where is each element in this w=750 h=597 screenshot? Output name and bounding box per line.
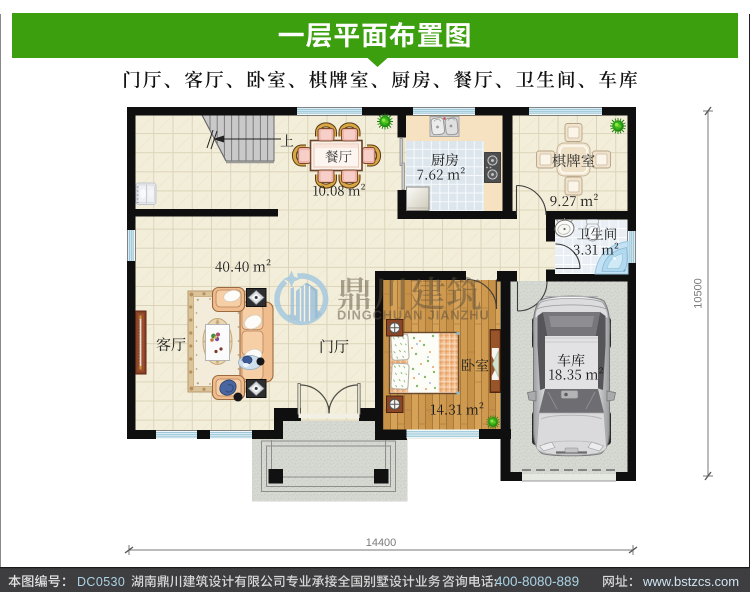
svg-text:400-8080-889: 400-8080-889 xyxy=(495,574,579,589)
svg-text:DINGCHUAN JIANZHU: DINGCHUAN JIANZHU xyxy=(337,308,490,323)
svg-text:10500: 10500 xyxy=(693,278,705,309)
svg-text:www.bstzcs.com: www.bstzcs.com xyxy=(642,574,739,589)
svg-text:14400: 14400 xyxy=(366,537,397,549)
svg-text:DC0530: DC0530 xyxy=(77,575,125,589)
